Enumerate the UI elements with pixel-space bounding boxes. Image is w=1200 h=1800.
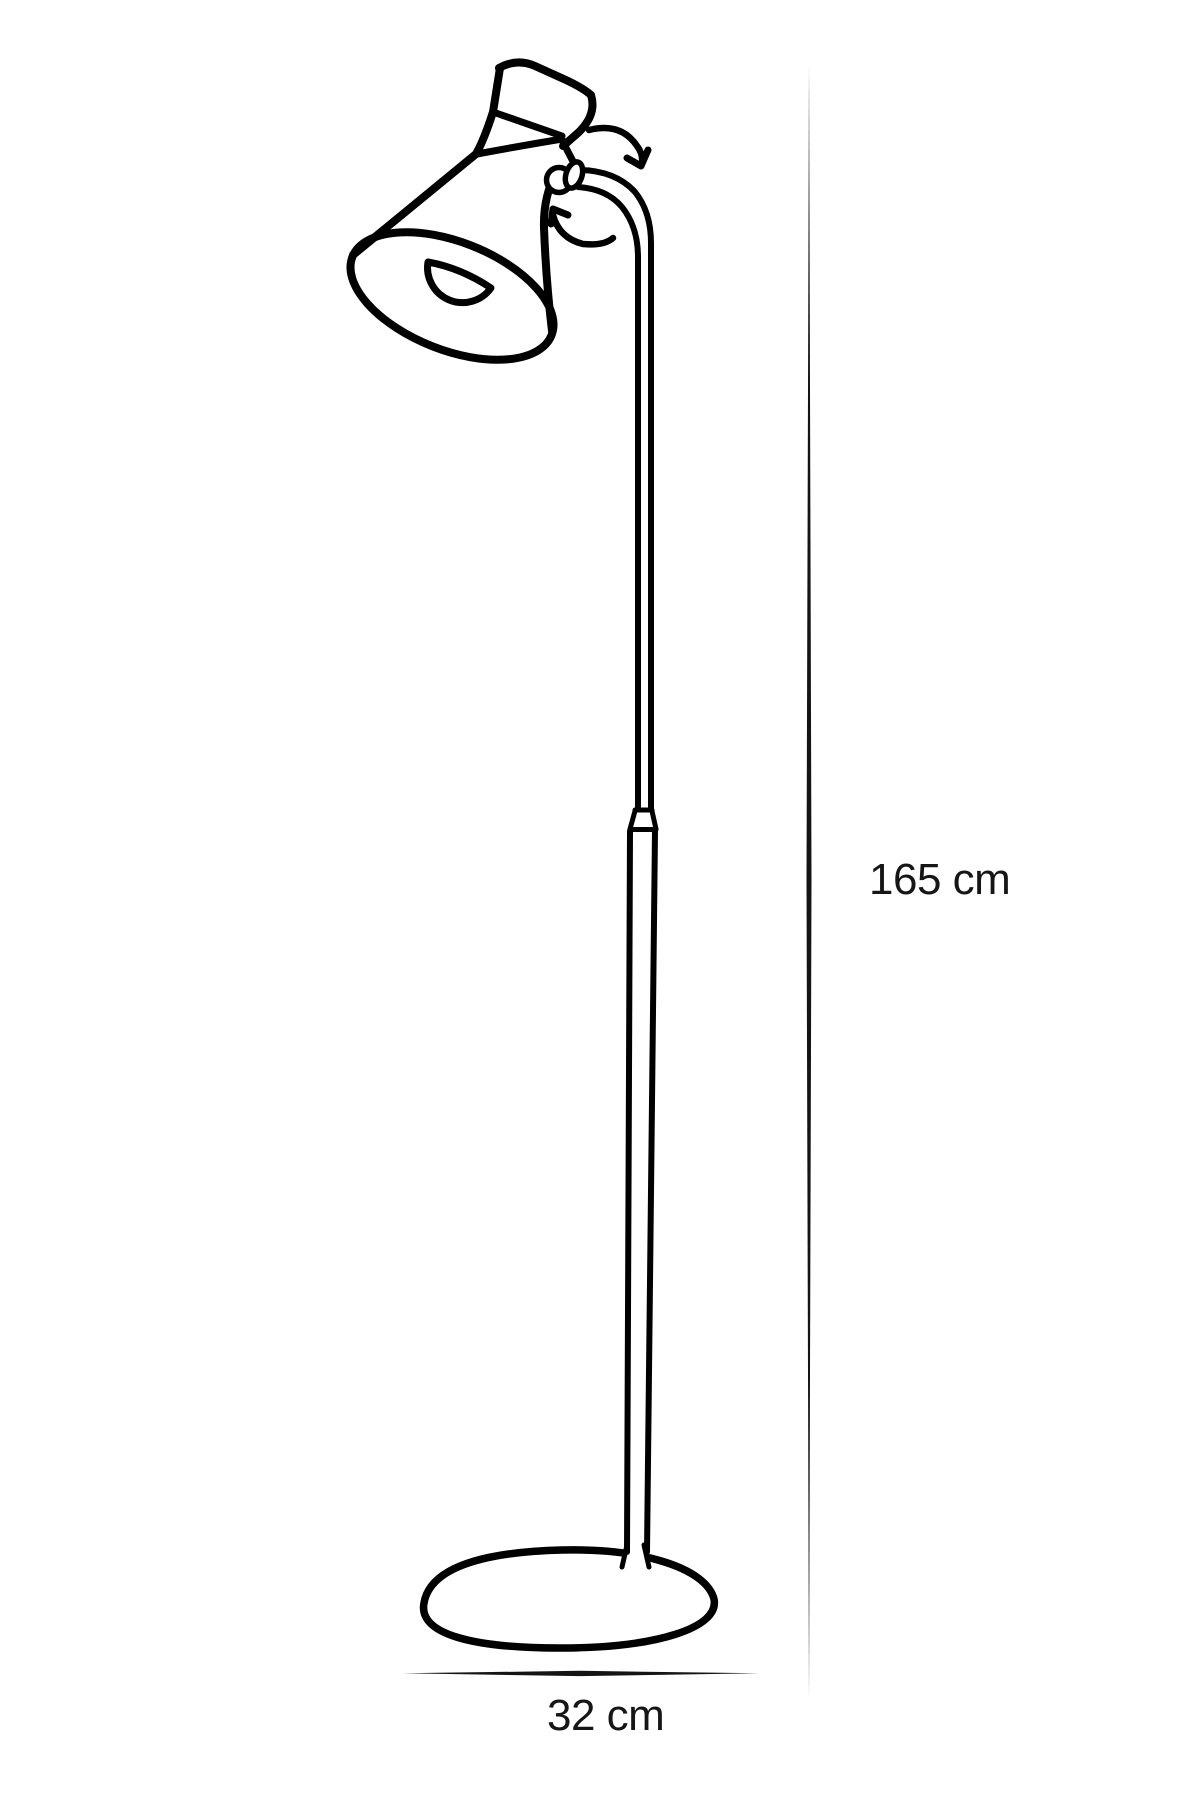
rotation-arrow-clockwise-icon <box>589 128 648 166</box>
lamp-pole-icon <box>578 170 656 1552</box>
floor-lamp-dimension-diagram: 165 cm 32 cm <box>0 0 1200 1800</box>
height-dimension-label: 165 cm <box>869 858 1010 902</box>
width-dimension-line <box>403 1671 759 1676</box>
floor-lamp-illustration <box>0 0 1200 1800</box>
light-bulb-icon <box>428 262 491 303</box>
lamp-base-icon <box>424 1550 715 1648</box>
width-dimension-label: 32 cm <box>547 1694 664 1738</box>
pole-joint-icon <box>630 810 656 830</box>
rotation-arrow-counterclockwise-icon <box>551 209 613 244</box>
height-dimension-line <box>807 64 812 1701</box>
